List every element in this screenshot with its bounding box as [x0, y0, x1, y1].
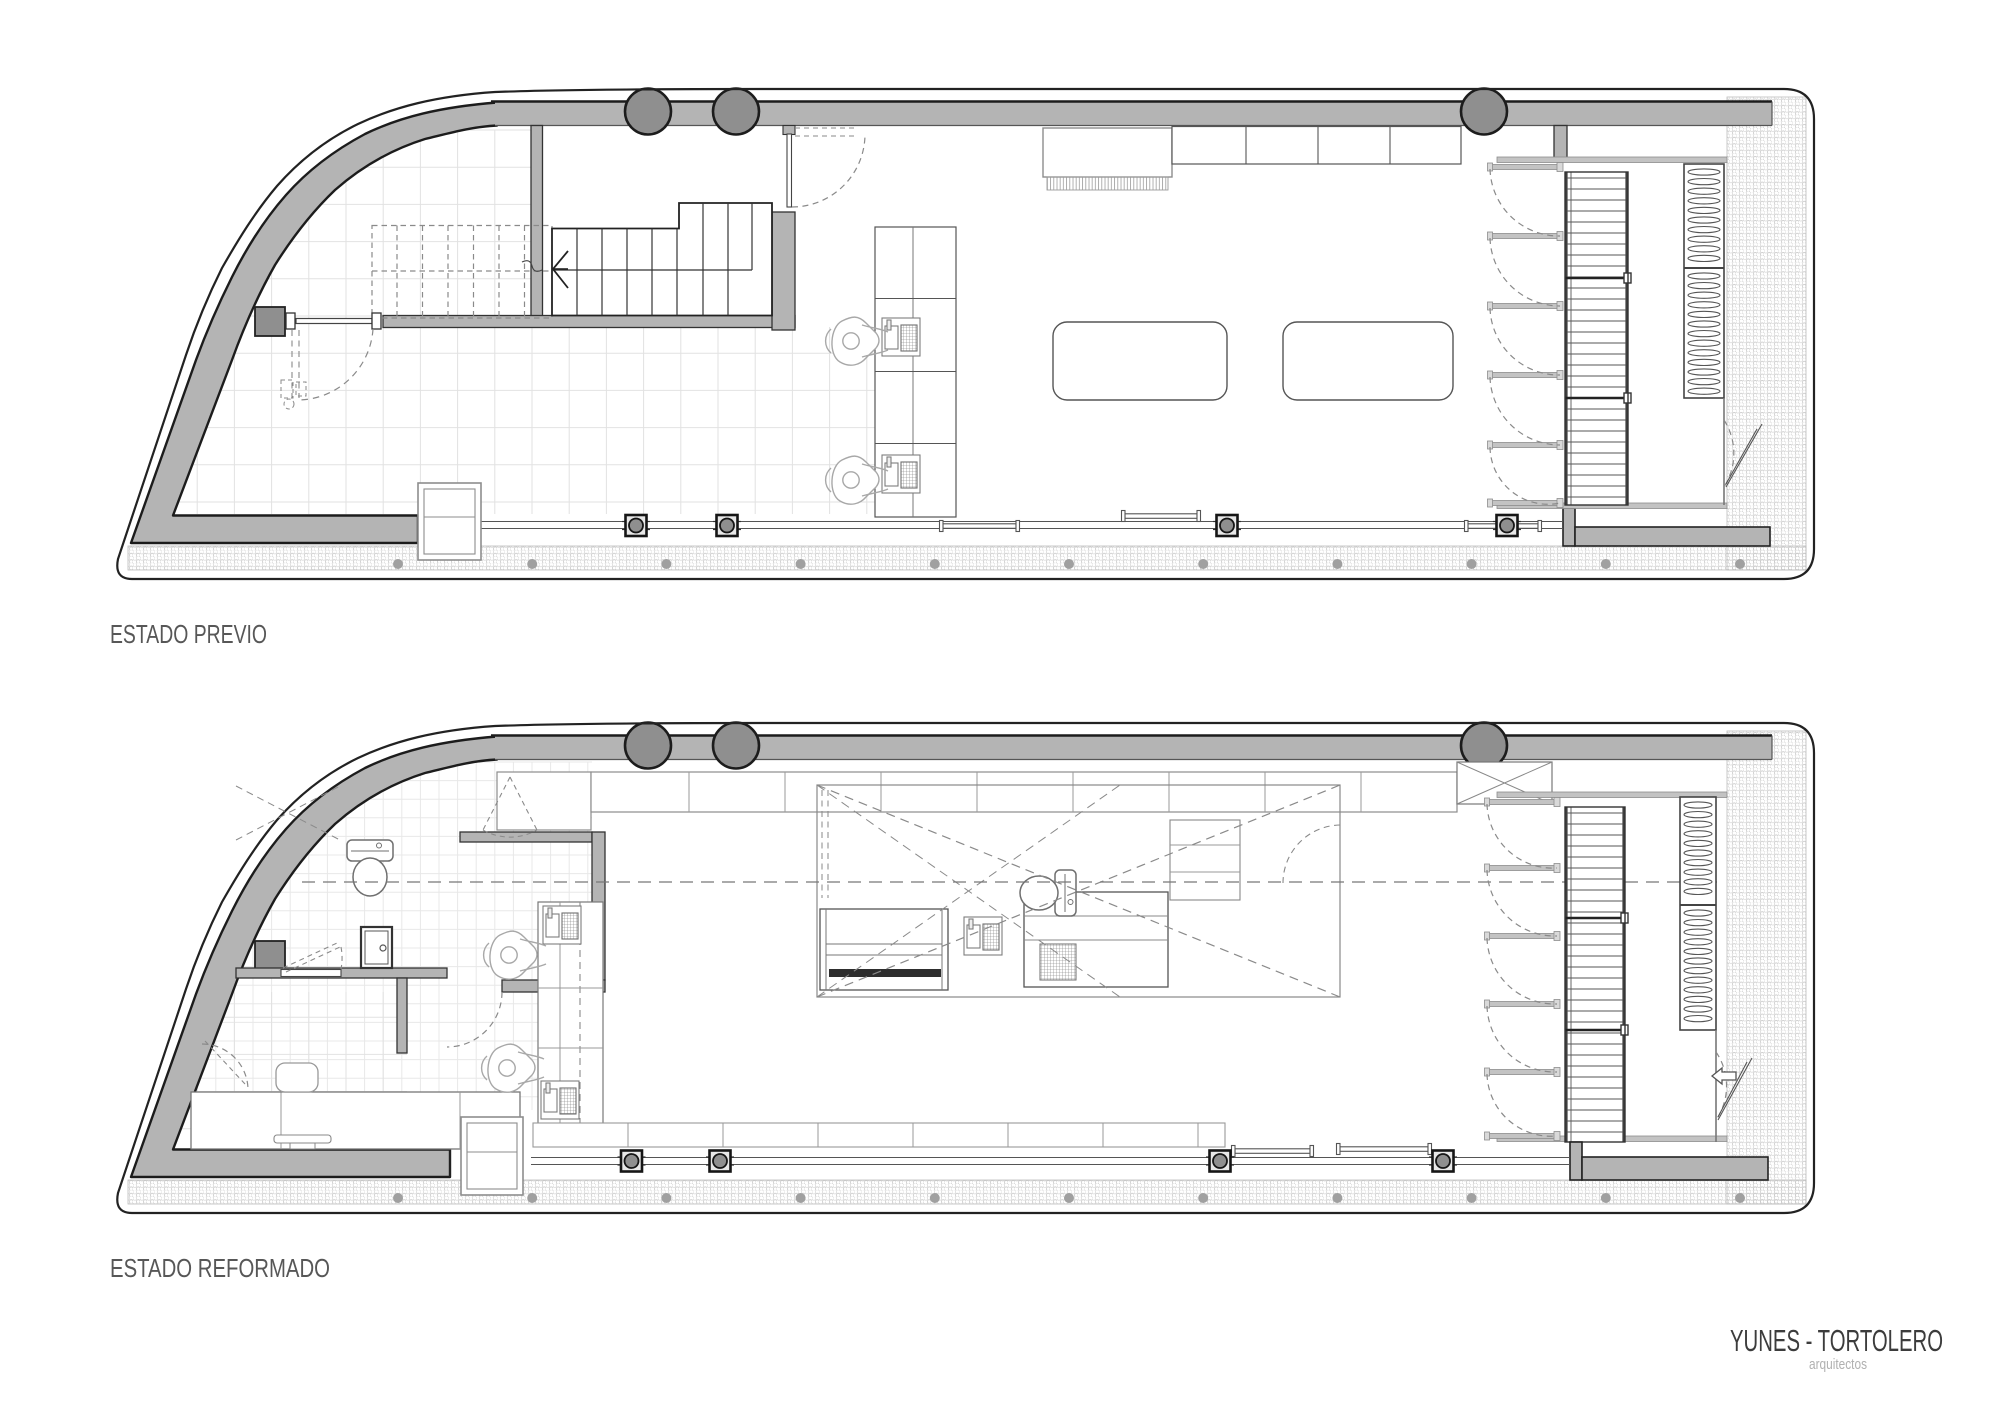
- svg-text:YUNES - TORTOLERO: YUNES - TORTOLERO: [1730, 1323, 1943, 1358]
- svg-text:arquitectos: arquitectos: [1809, 1356, 1867, 1373]
- svg-text:ESTADO REFORMADO: ESTADO REFORMADO: [110, 1253, 330, 1283]
- svg-text:ESTADO PREVIO: ESTADO PREVIO: [110, 619, 267, 649]
